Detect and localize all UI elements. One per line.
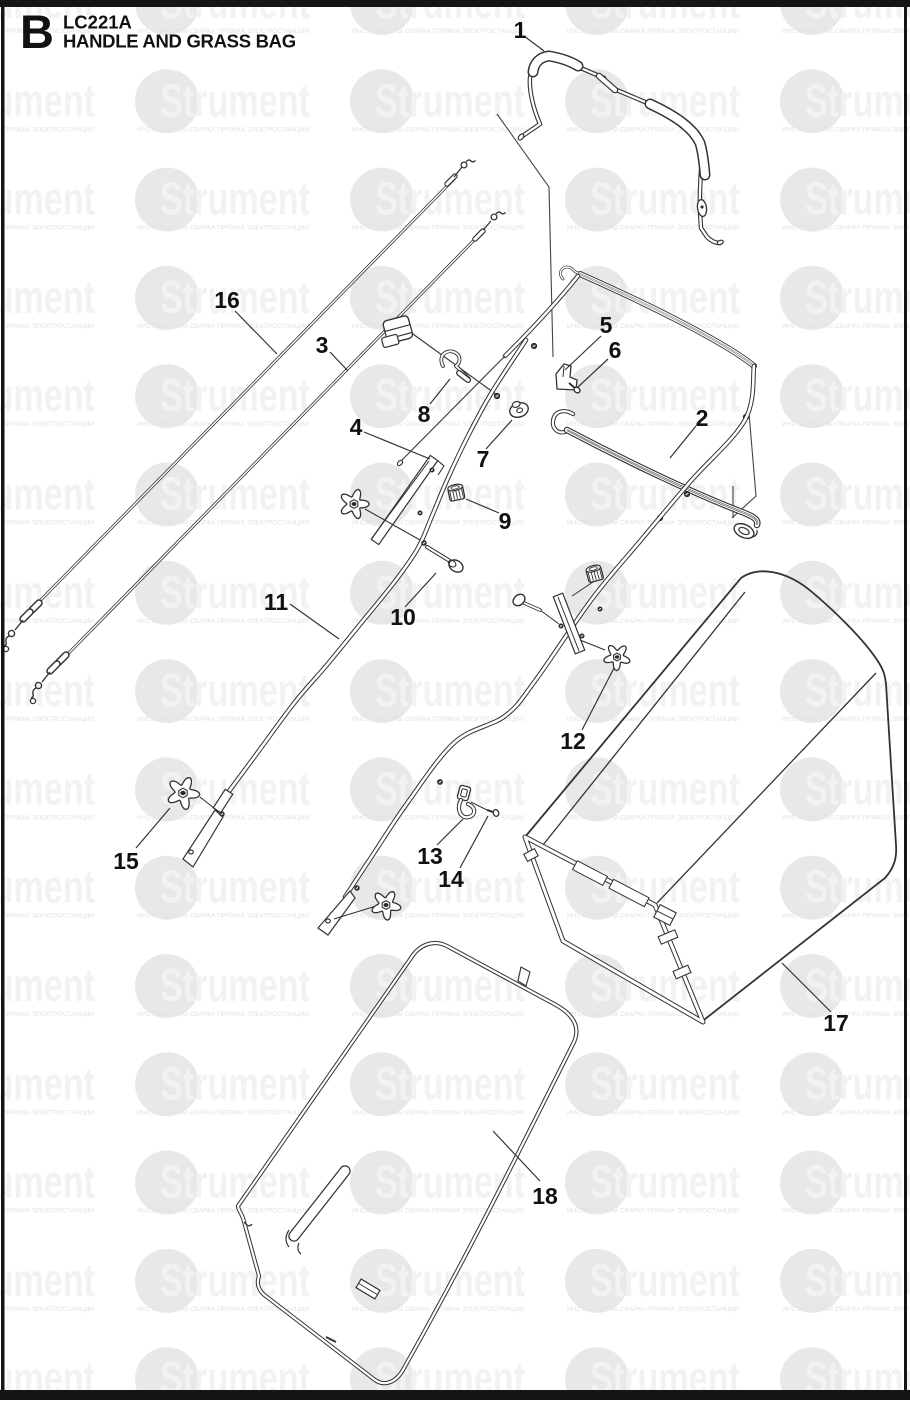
svg-text:4: 4	[350, 414, 363, 440]
svg-text:3: 3	[316, 332, 329, 358]
svg-text:B: B	[20, 5, 54, 58]
svg-text:LC221A: LC221A	[63, 12, 132, 33]
svg-text:15: 15	[113, 848, 139, 874]
svg-text:7: 7	[477, 446, 490, 472]
svg-text:10: 10	[390, 604, 416, 630]
svg-text:16: 16	[214, 287, 240, 313]
svg-text:12: 12	[560, 728, 586, 754]
svg-text:1: 1	[514, 17, 527, 43]
svg-text:9: 9	[499, 508, 512, 534]
svg-text:11: 11	[264, 589, 289, 615]
svg-text:HANDLE AND GRASS BAG: HANDLE AND GRASS BAG	[63, 31, 296, 52]
svg-text:6: 6	[609, 337, 622, 363]
svg-text:14: 14	[438, 866, 464, 892]
svg-text:2: 2	[696, 405, 709, 431]
svg-text:18: 18	[532, 1183, 558, 1209]
svg-text:5: 5	[600, 312, 613, 338]
svg-text:17: 17	[823, 1010, 849, 1036]
svg-text:8: 8	[418, 401, 431, 427]
